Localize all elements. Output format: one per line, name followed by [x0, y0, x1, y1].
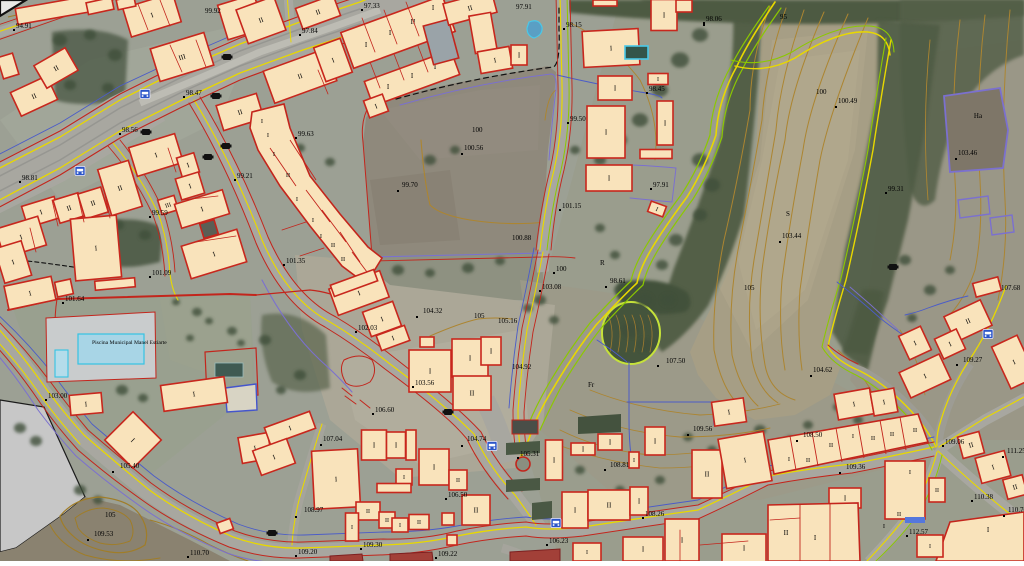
svg-text:103.00: 103.00: [48, 392, 68, 400]
svg-text:110.70: 110.70: [1008, 506, 1024, 514]
svg-text:112.57: 112.57: [909, 528, 928, 536]
svg-text:99.21: 99.21: [237, 172, 253, 180]
svg-text:I: I: [261, 118, 263, 125]
svg-text:98.47: 98.47: [186, 89, 202, 97]
svg-text:109.30: 109.30: [363, 541, 383, 549]
svg-text:II: II: [607, 501, 612, 509]
svg-text:Ha: Ha: [974, 112, 983, 120]
svg-text:109.56: 109.56: [693, 425, 713, 433]
svg-text:II: II: [417, 520, 421, 526]
svg-text:103.46: 103.46: [958, 149, 978, 157]
svg-text:II: II: [705, 470, 710, 478]
svg-text:105.40: 105.40: [120, 462, 140, 470]
svg-text:109.27: 109.27: [963, 356, 983, 364]
svg-text:I: I: [788, 456, 790, 463]
svg-text:II: II: [470, 389, 475, 397]
svg-text:II: II: [341, 256, 345, 263]
svg-text:II: II: [385, 518, 389, 524]
svg-text:II: II: [871, 435, 875, 442]
svg-text:I: I: [657, 77, 659, 83]
svg-text:105: 105: [105, 511, 116, 519]
svg-text:104.62: 104.62: [813, 366, 833, 374]
svg-text:S: S: [786, 210, 790, 218]
svg-text:I: I: [399, 523, 401, 529]
svg-text:103.08: 103.08: [542, 283, 562, 291]
svg-text:99.59: 99.59: [152, 209, 168, 217]
svg-text:109.06: 109.06: [945, 438, 965, 446]
svg-text:106.50: 106.50: [448, 491, 468, 499]
svg-text:II: II: [784, 529, 789, 537]
svg-text:98.81: 98.81: [22, 174, 38, 182]
svg-text:109.36: 109.36: [846, 463, 866, 471]
svg-text:100.88: 100.88: [512, 234, 532, 242]
svg-text:111.25: 111.25: [1007, 447, 1024, 455]
svg-text:I: I: [267, 132, 269, 139]
svg-text:100.56: 100.56: [464, 144, 484, 152]
svg-text:97.91: 97.91: [653, 181, 669, 189]
svg-text:II: II: [474, 507, 479, 515]
svg-text:II: II: [897, 511, 901, 518]
svg-text:I: I: [273, 151, 275, 158]
svg-text:97.33: 97.33: [364, 2, 380, 10]
svg-text:109.53: 109.53: [94, 530, 114, 538]
svg-text:101.09: 101.09: [152, 269, 172, 277]
svg-text:108.50: 108.50: [803, 431, 823, 439]
svg-text:107.50: 107.50: [666, 357, 686, 365]
svg-text:II: II: [366, 509, 370, 515]
svg-text:104.32: 104.32: [423, 307, 443, 315]
svg-text:Fr: Fr: [588, 381, 595, 389]
svg-text:104.92: 104.92: [512, 363, 532, 371]
svg-text:99.50: 99.50: [570, 115, 586, 123]
svg-text:I: I: [929, 544, 931, 550]
svg-text:99.92: 99.92: [205, 7, 221, 15]
svg-text:94.91: 94.91: [16, 22, 32, 30]
svg-text:109.22: 109.22: [438, 550, 458, 558]
svg-text:105.16: 105.16: [498, 317, 518, 325]
svg-text:II: II: [806, 457, 810, 464]
svg-text:99.70: 99.70: [402, 181, 418, 189]
svg-text:100: 100: [556, 265, 567, 273]
svg-text:105: 105: [474, 312, 485, 320]
svg-text:I: I: [909, 469, 911, 476]
svg-text:99.31: 99.31: [888, 185, 904, 193]
svg-text:100.49: 100.49: [838, 97, 858, 105]
svg-text:103.56: 103.56: [415, 379, 435, 387]
svg-text:106.23: 106.23: [549, 537, 569, 545]
svg-text:I: I: [312, 217, 314, 224]
svg-text:I: I: [852, 433, 854, 440]
svg-text:100: 100: [816, 88, 827, 96]
svg-text:97.91: 97.91: [516, 3, 532, 11]
svg-text:II: II: [935, 488, 939, 494]
svg-text:95: 95: [780, 13, 788, 21]
svg-text:II: II: [286, 172, 290, 179]
svg-text:II: II: [829, 442, 833, 449]
svg-text:107.04: 107.04: [323, 435, 343, 443]
svg-text:107.68: 107.68: [1001, 284, 1021, 292]
svg-text:97.84: 97.84: [302, 27, 318, 35]
svg-text:II: II: [913, 427, 917, 434]
svg-text:108.97: 108.97: [304, 506, 324, 514]
svg-text:98.61: 98.61: [610, 277, 626, 285]
svg-text:105: 105: [744, 284, 755, 292]
svg-text:II: II: [456, 478, 460, 484]
svg-text:102.03: 102.03: [358, 324, 378, 332]
svg-text:103.44: 103.44: [782, 232, 802, 240]
svg-text:I: I: [883, 523, 885, 530]
svg-text:106.60: 106.60: [375, 406, 395, 414]
svg-text:I: I: [633, 458, 635, 464]
svg-text:98.56: 98.56: [122, 126, 138, 134]
svg-text:105.31: 105.31: [520, 450, 540, 458]
svg-text:98.45: 98.45: [649, 85, 665, 93]
svg-text:104.74: 104.74: [467, 435, 487, 443]
svg-text:99.63: 99.63: [298, 130, 314, 138]
svg-text:I: I: [320, 233, 322, 240]
svg-text:R: R: [600, 259, 605, 267]
svg-text:II: II: [890, 431, 894, 438]
svg-text:110.38: 110.38: [974, 493, 993, 501]
svg-text:109.20: 109.20: [298, 548, 318, 556]
svg-text:I: I: [403, 475, 405, 481]
svg-text:108.81: 108.81: [610, 461, 630, 469]
svg-text:I: I: [586, 550, 588, 556]
svg-text:II: II: [331, 242, 335, 249]
svg-text:I: I: [351, 525, 353, 531]
svg-text:108.26: 108.26: [645, 510, 665, 518]
svg-text:98.15: 98.15: [566, 21, 582, 29]
svg-text:100: 100: [472, 126, 483, 134]
svg-text:110.70: 110.70: [190, 549, 209, 557]
svg-text:101.15: 101.15: [562, 202, 582, 210]
svg-text:98.06: 98.06: [706, 15, 722, 23]
svg-text:101.64: 101.64: [65, 295, 85, 303]
svg-text:101.35: 101.35: [286, 257, 306, 265]
svg-text:I: I: [296, 196, 298, 203]
svg-text:Piscina Municipal Manel Estiar: Piscina Municipal Manel Estiarte: [92, 340, 167, 346]
